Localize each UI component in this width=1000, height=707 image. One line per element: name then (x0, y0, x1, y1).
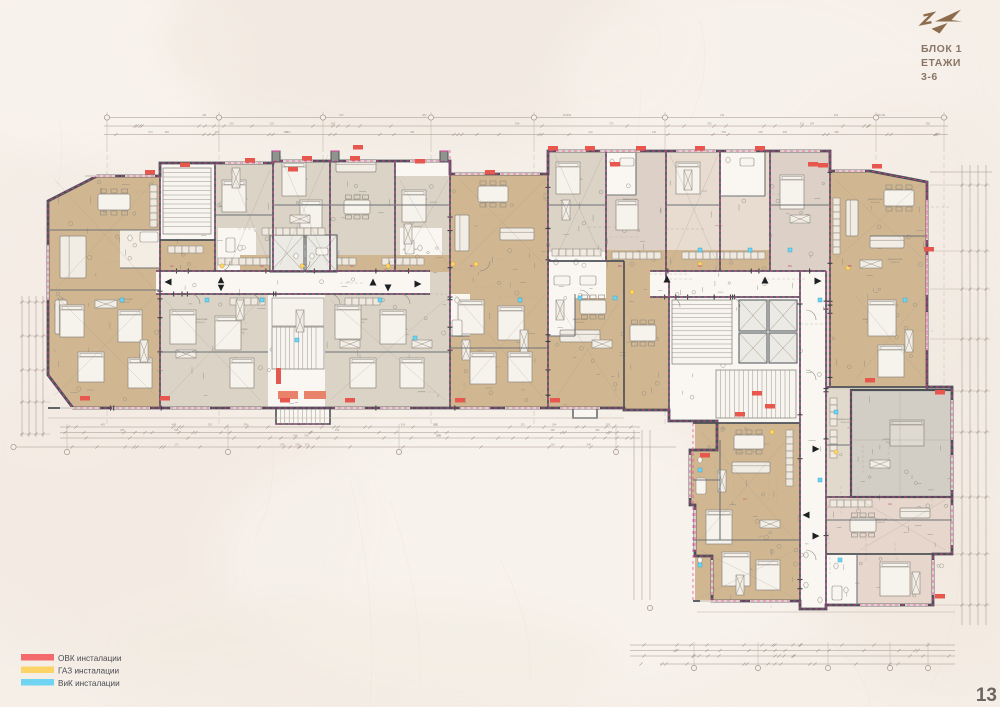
svg-text:15.60 m2: 15.60 m2 (575, 322, 585, 324)
svg-text:326: 326 (208, 423, 213, 427)
svg-text:595: 595 (174, 428, 179, 432)
svg-text:171: 171 (174, 443, 179, 447)
svg-text:B1: B1 (470, 264, 474, 268)
svg-text:B2: B2 (618, 264, 622, 268)
svg-text:179: 179 (305, 443, 310, 447)
svg-text:15.60 m2: 15.60 m2 (120, 302, 130, 304)
svg-text:235: 235 (280, 443, 285, 447)
svg-text:C1: C1 (743, 497, 747, 501)
svg-text:A1: A1 (170, 264, 174, 268)
svg-text:578: 578 (436, 434, 441, 438)
svg-text:399: 399 (243, 423, 248, 427)
svg-text:374: 374 (148, 130, 153, 134)
svg-text:140: 140 (652, 130, 657, 134)
svg-text:ВиК инсталации: ВиК инсталации (58, 679, 120, 688)
svg-text:184: 184 (552, 423, 557, 427)
svg-text:445: 445 (172, 423, 177, 427)
svg-text:13: 13 (976, 685, 997, 706)
svg-text:302: 302 (286, 130, 291, 134)
svg-text:ОВК инсталации: ОВК инсталации (58, 654, 121, 663)
svg-text:246: 246 (587, 443, 592, 447)
svg-text:373: 373 (609, 121, 614, 125)
svg-text:396: 396 (595, 428, 600, 432)
svg-text:дневна кухня: дневна кухня (888, 258, 903, 261)
svg-text:405: 405 (758, 130, 763, 134)
svg-text:540: 540 (515, 121, 520, 125)
svg-text:234: 234 (720, 113, 725, 117)
svg-text:567: 567 (331, 121, 336, 125)
svg-text:дневна кухня: дневна кухня (868, 198, 883, 201)
svg-text:212: 212 (588, 130, 593, 134)
svg-text:226: 226 (229, 121, 234, 125)
svg-text:15.60 m2: 15.60 m2 (840, 422, 850, 424)
svg-text:129: 129 (335, 428, 340, 432)
svg-text:3-6: 3-6 (921, 71, 938, 83)
svg-text:336: 336 (304, 434, 309, 438)
svg-text:123: 123 (270, 121, 275, 125)
svg-text:209: 209 (295, 443, 300, 447)
svg-text:15.60 m2: 15.60 m2 (870, 202, 880, 204)
svg-text:360: 360 (926, 121, 931, 125)
svg-text:B3: B3 (698, 264, 702, 268)
svg-text:15.60 m2: 15.60 m2 (195, 322, 205, 324)
svg-text:125: 125 (520, 423, 525, 427)
svg-text:181: 181 (202, 113, 207, 117)
svg-text:A3: A3 (350, 264, 354, 268)
svg-text:405: 405 (165, 130, 170, 134)
svg-text:535: 535 (606, 423, 611, 427)
svg-text:C2: C2 (888, 502, 892, 506)
svg-text:15.60 m2: 15.60 m2 (890, 262, 900, 264)
svg-text:161: 161 (550, 443, 555, 447)
svg-text:198: 198 (550, 428, 555, 432)
svg-text:559: 559 (722, 130, 727, 134)
svg-text:БЛОК 1: БЛОК 1 (921, 43, 962, 55)
svg-text:A2: A2 (260, 264, 264, 268)
svg-text:217: 217 (800, 121, 805, 125)
svg-text:ЕТАЖИ: ЕТАЖИ (921, 57, 961, 69)
svg-text:334: 334 (834, 113, 839, 117)
svg-text:509: 509 (293, 434, 298, 438)
svg-text:527: 527 (339, 113, 344, 117)
svg-text:266: 266 (567, 113, 572, 117)
svg-text:261: 261 (881, 113, 886, 117)
svg-text:ГАЗ инсталации: ГАЗ инсталации (58, 667, 119, 676)
svg-text:185: 185 (120, 428, 125, 432)
svg-text:305: 305 (783, 130, 788, 134)
svg-text:294: 294 (810, 121, 815, 125)
svg-text:15.60 m2: 15.60 m2 (875, 522, 885, 524)
svg-text:395: 395 (834, 130, 839, 134)
svg-text:482: 482 (101, 423, 106, 427)
svg-text:281: 281 (410, 130, 415, 134)
svg-text:596: 596 (433, 423, 438, 427)
svg-text:B5: B5 (848, 264, 852, 268)
svg-text:336: 336 (707, 121, 712, 125)
svg-text:140: 140 (215, 130, 220, 134)
svg-text:452: 452 (422, 113, 427, 117)
svg-text:314: 314 (401, 423, 406, 427)
svg-text:B4: B4 (788, 264, 792, 268)
